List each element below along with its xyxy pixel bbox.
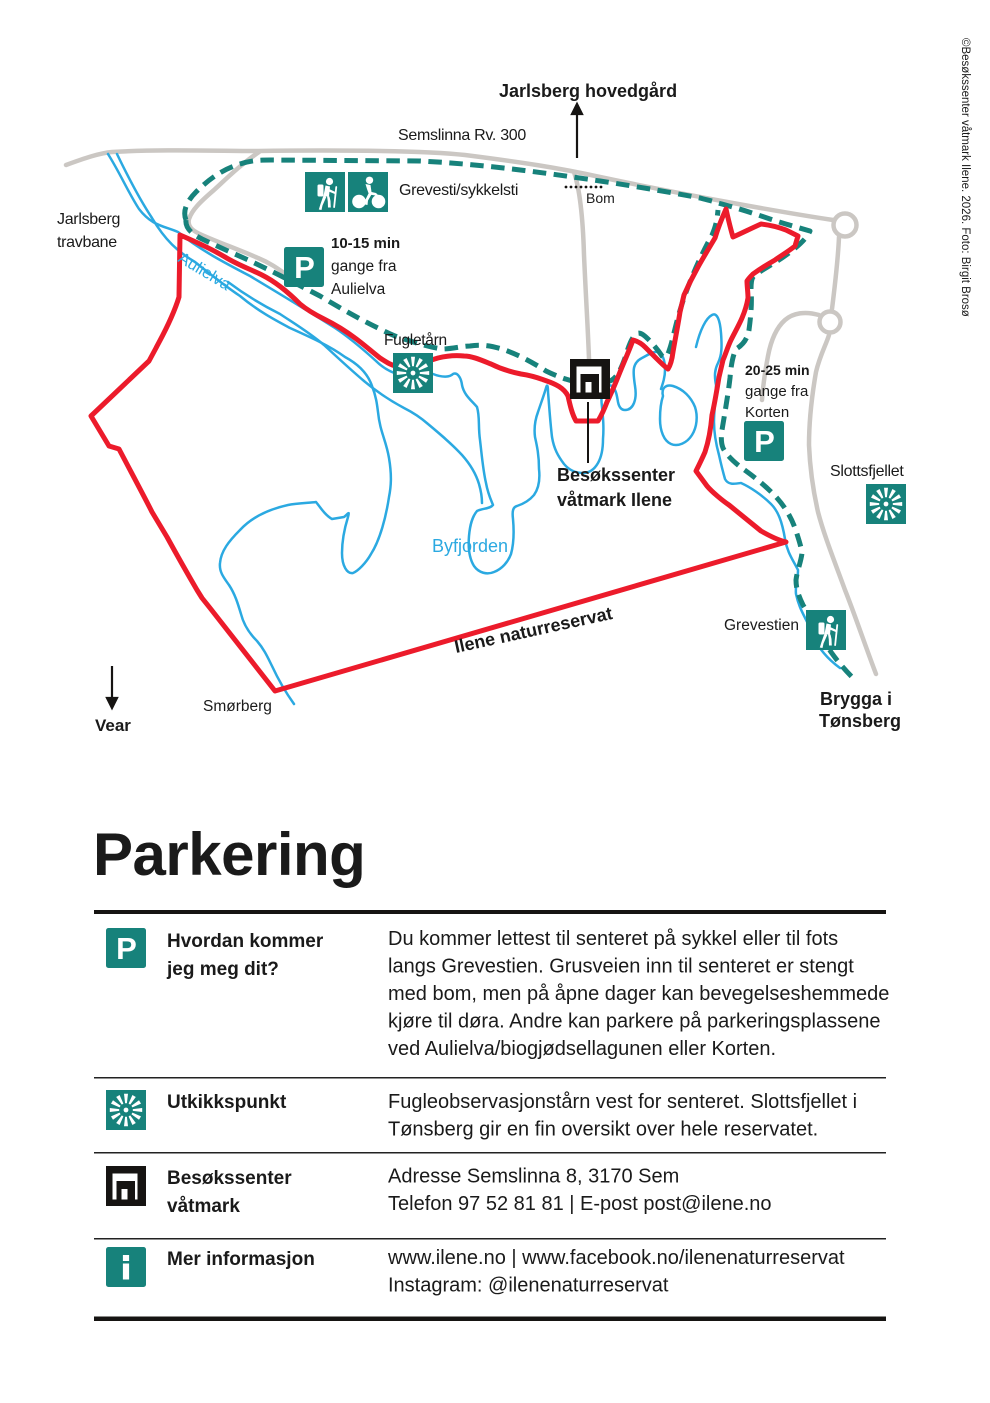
svg-text:Semslinna Rv. 300: Semslinna Rv. 300 (398, 127, 526, 144)
svg-text:med bom, men på åpne dager kan: med bom, men på åpne dager kan bevegelse… (388, 983, 889, 1005)
svg-text:Brygga i: Brygga i (820, 689, 892, 709)
svg-text:20-25 min: 20-25 min (745, 362, 810, 378)
svg-text:våtmark: våtmark (167, 1196, 240, 1217)
svg-text:Besøkssenter: Besøkssenter (557, 465, 675, 485)
svg-text:Korten: Korten (745, 404, 789, 421)
svg-text:Byfjorden: Byfjorden (432, 536, 508, 556)
svg-text:Bom: Bom (586, 190, 615, 206)
svg-text:Du kommer lettest til senteret: Du kommer lettest til senteret på sykkel… (388, 928, 838, 950)
svg-text:ved Aulielva/biogjødsellagunen: ved Aulielva/biogjødsellagunen eller Kor… (388, 1038, 776, 1060)
svg-text:Hvordan kommer: Hvordan kommer (167, 931, 324, 952)
svg-text:Smørberg: Smørberg (203, 698, 272, 715)
svg-text:Fugletårn: Fugletårn (384, 332, 447, 349)
svg-text:Telefon 97 52 81 81 | E-post p: Telefon 97 52 81 81 | E-post post@ilene.… (388, 1193, 772, 1215)
svg-text:Grevestien: Grevestien (724, 617, 799, 634)
svg-text:gange fra: gange fra (331, 258, 397, 275)
svg-text:Tønsberg: Tønsberg (819, 711, 901, 731)
svg-text:©Besøkssenter våtmark Ilene. 2: ©Besøkssenter våtmark Ilene. 2026. Foto:… (959, 38, 971, 317)
svg-text:Mer informasjon: Mer informasjon (167, 1249, 315, 1270)
svg-text:jeg meg dit?: jeg meg dit? (166, 959, 279, 980)
svg-text:travbane: travbane (57, 234, 117, 251)
svg-text:Besøkssenter: Besøkssenter (167, 1168, 292, 1189)
svg-text:Tønsberg gir en fin oversikt o: Tønsberg gir en fin oversikt over hele r… (388, 1119, 818, 1141)
svg-text:våtmark Ilene: våtmark Ilene (557, 490, 672, 510)
svg-text:Instagram: @ilenenaturreservat: Instagram: @ilenenaturreservat (388, 1275, 669, 1297)
svg-text:www.ilene.no | www.facebook.no: www.ilene.no | www.facebook.no/ilenenatu… (387, 1247, 845, 1269)
svg-text:Fugleobservasjonstårn vest for: Fugleobservasjonstårn vest for senteret.… (388, 1091, 857, 1113)
svg-text:Aulielva: Aulielva (331, 281, 386, 298)
svg-text:Grevesti/sykkelsti: Grevesti/sykkelsti (399, 182, 518, 199)
svg-text:Vear: Vear (95, 716, 131, 735)
svg-text:10-15 min: 10-15 min (331, 235, 400, 252)
svg-text:kjøre til døra. Andre kan park: kjøre til døra. Andre kan parkere på par… (388, 1011, 880, 1033)
svg-text:gange fra: gange fra (745, 383, 809, 400)
svg-text:Slottsfjellet: Slottsfjellet (830, 463, 904, 480)
svg-text:Parkering: Parkering (93, 821, 365, 888)
svg-text:Jarlsberg: Jarlsberg (57, 211, 120, 228)
svg-text:Adresse Semslinna 8, 3170 Sem: Adresse Semslinna 8, 3170 Sem (388, 1166, 679, 1188)
svg-text:Utkikkspunkt: Utkikkspunkt (167, 1092, 287, 1113)
svg-text:langs Grevestien. Grusveien in: langs Grevestien. Grusveien inn til sent… (388, 956, 854, 978)
svg-text:Jarlsberg hovedgård: Jarlsberg hovedgård (499, 81, 677, 101)
